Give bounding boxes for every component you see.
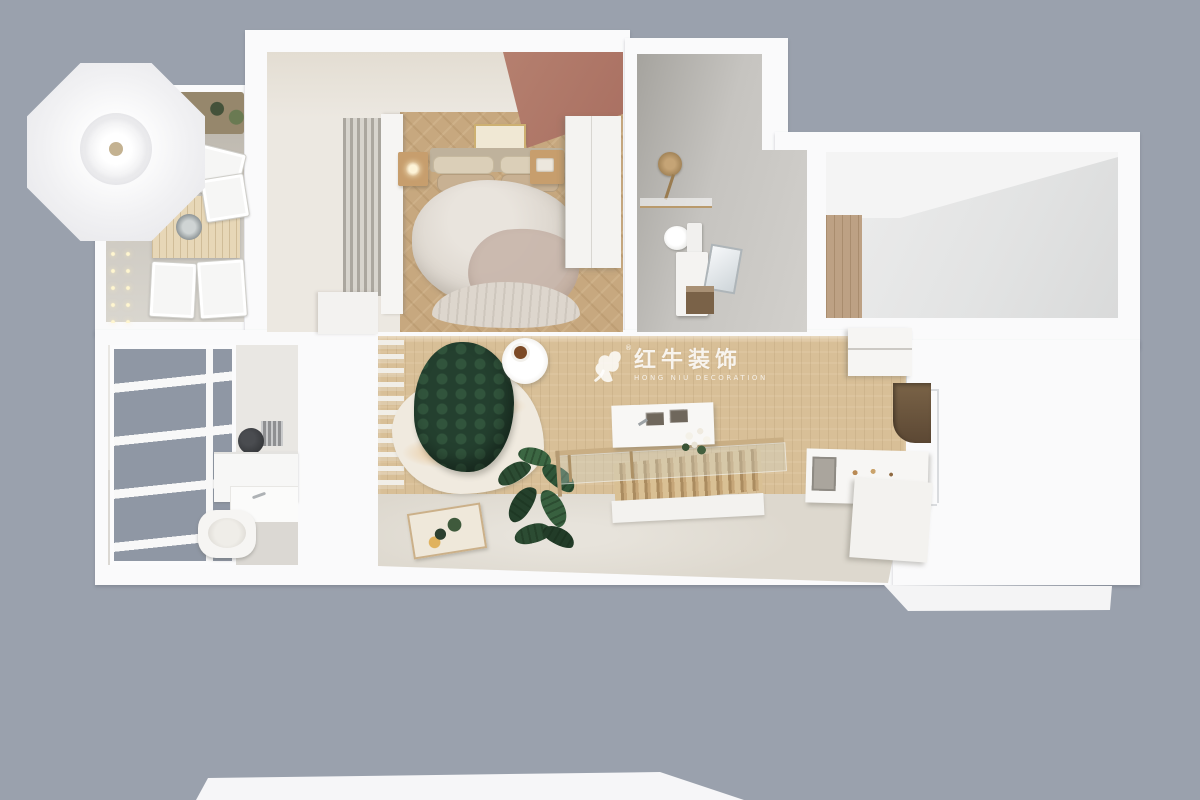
shower-glass-partition: [640, 198, 712, 208]
bedroom-curtains: [343, 118, 385, 296]
right-room-wood-floor: [826, 215, 862, 318]
right-room-interior: [826, 152, 1118, 318]
outdoor-chair: [196, 258, 248, 319]
wardrobe: [565, 116, 621, 268]
watermark-subtitle: HONG NIU DECORATION: [634, 374, 768, 383]
plant-leaf: [502, 482, 541, 526]
lower-step-slab: [880, 583, 1115, 613]
bull-logo-icon: ®: [590, 348, 628, 388]
round-side-table: [502, 338, 548, 384]
outdoor-chair: [200, 173, 250, 223]
pillow: [433, 156, 494, 174]
kitchen-wall-cabinets: [848, 328, 912, 376]
outdoor-chair: [149, 261, 198, 319]
bottom-floor-slab-edge: [196, 770, 744, 800]
bedside-lamp: [406, 162, 420, 176]
nightstand-left: [398, 152, 428, 186]
floor-basin: [198, 510, 256, 558]
table-plate: [176, 214, 202, 240]
umbrella-pole: [109, 142, 123, 156]
kitchen-dark-niche: [893, 383, 931, 443]
floorplan-3d-render: ® 红牛装饰 HONG NIU DECORATION: [0, 0, 1200, 800]
floor-basin-bowl: [208, 518, 246, 548]
toilet-tank: [687, 223, 702, 253]
vanity-storage-niche: [686, 286, 714, 314]
wall-fan: [238, 428, 264, 454]
coffee-machine: [812, 457, 837, 492]
understair-cabinet: [849, 477, 932, 562]
flower-bouquet: [676, 420, 720, 460]
registered-mark: ®: [625, 345, 632, 352]
watermark-title: 红牛装饰: [634, 348, 768, 374]
slab-step-line: [937, 391, 939, 503]
island-sink: [646, 412, 664, 426]
brand-watermark: ® 红牛装饰 HONG NIU DECORATION: [590, 348, 780, 402]
bedroom-partition-wall: [381, 114, 403, 314]
watermark-text: 红牛装饰 HONG NIU DECORATION: [634, 348, 768, 383]
right-room-wall: [826, 152, 1118, 318]
right-wing-slab: [893, 340, 1140, 585]
shower-head-brass: [658, 152, 682, 176]
nightstand-books: [536, 158, 554, 172]
bedroom-door-step: [318, 292, 378, 334]
coffee-cup: [514, 346, 527, 359]
wall-vent: [261, 421, 283, 446]
nightstand-right: [530, 150, 564, 184]
